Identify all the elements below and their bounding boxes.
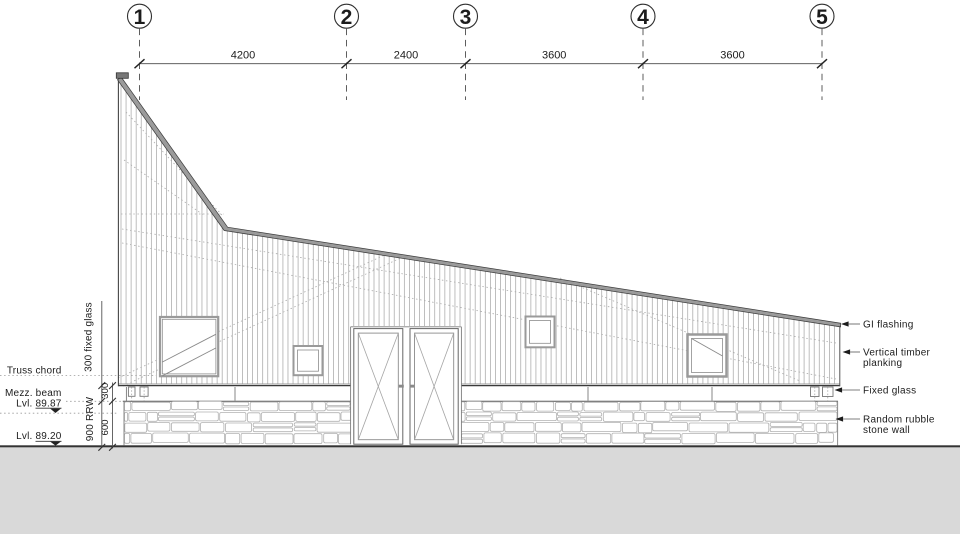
svg-text:300: 300: [100, 383, 111, 399]
svg-text:3: 3: [460, 6, 472, 29]
svg-text:3600: 3600: [720, 50, 744, 62]
svg-text:stone wall: stone wall: [863, 425, 910, 436]
svg-text:300 fixed glass: 300 fixed glass: [84, 302, 95, 372]
svg-text:5: 5: [816, 6, 828, 29]
svg-text:600: 600: [100, 419, 111, 435]
svg-text:planking: planking: [863, 358, 902, 369]
svg-text:900 RRW: 900 RRW: [85, 396, 96, 441]
svg-text:3600: 3600: [542, 50, 566, 62]
svg-text:2: 2: [341, 6, 353, 29]
svg-text:Fixed glass: Fixed glass: [863, 385, 916, 396]
svg-text:GI flashing: GI flashing: [863, 319, 914, 330]
svg-text:2400: 2400: [394, 50, 418, 62]
svg-text:Vertical timber: Vertical timber: [863, 347, 931, 358]
svg-text:1: 1: [134, 6, 146, 29]
svg-text:Lvl. 89.87: Lvl. 89.87: [16, 398, 62, 409]
svg-text:4200: 4200: [231, 50, 255, 62]
svg-text:Random rubble: Random rubble: [863, 414, 935, 425]
svg-text:Lvl. 89.20: Lvl. 89.20: [16, 431, 62, 442]
svg-text:4: 4: [637, 6, 649, 29]
svg-text:Truss chord: Truss chord: [7, 366, 62, 377]
